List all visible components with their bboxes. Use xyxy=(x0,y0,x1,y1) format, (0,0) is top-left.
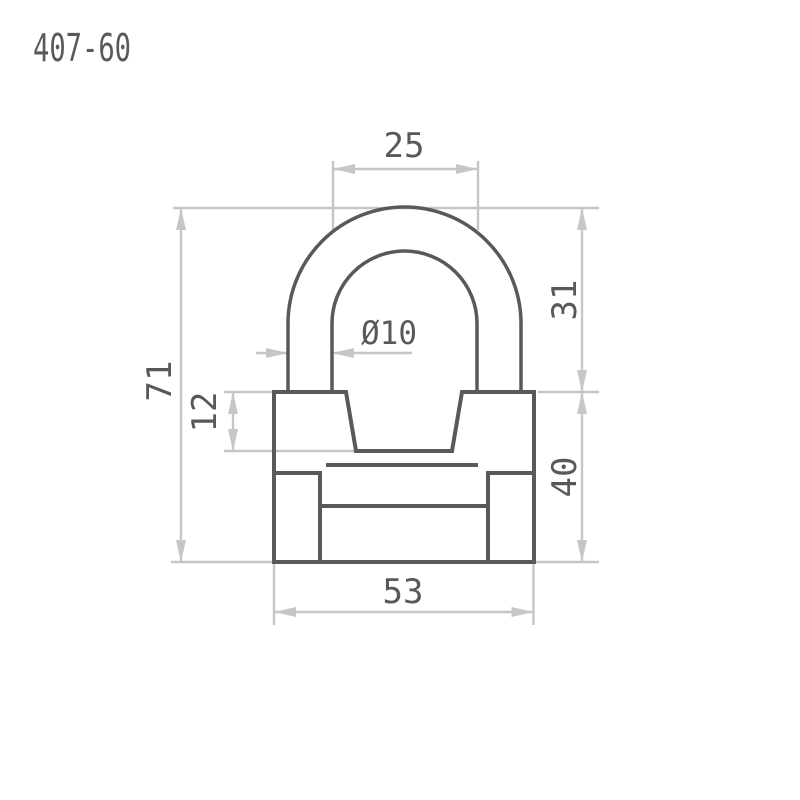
shackle-inner-width-label: 25 xyxy=(384,126,425,166)
arrow-40-top-icon xyxy=(577,392,587,414)
arrow-53-left-icon xyxy=(274,607,296,617)
arrow-31-top-icon xyxy=(577,208,587,230)
arrow-d10-right-icon xyxy=(332,348,354,358)
body-height-label: 40 xyxy=(545,457,585,498)
body-right-shoulder xyxy=(488,473,534,562)
arrow-25-left-icon xyxy=(333,164,355,174)
arrow-71-top-icon xyxy=(176,208,186,230)
arrow-d10-left-icon xyxy=(266,348,288,358)
shackle-outer-arc xyxy=(288,207,521,392)
lock-body-outline xyxy=(274,392,534,562)
arrow-12-top-icon xyxy=(228,392,238,414)
arrow-25-right-icon xyxy=(456,164,478,174)
arrow-31-bottom-icon xyxy=(577,370,587,392)
drawing-page: 407-60 25 Ø10 71 12 31 40 53 xyxy=(0,0,800,800)
drawing-title: 407-60 xyxy=(33,26,131,70)
arrow-40-bottom-icon xyxy=(577,540,587,562)
body-left-shoulder xyxy=(274,473,320,562)
padlock-outline xyxy=(274,207,534,562)
shackle-leg-visible-label: 12 xyxy=(185,392,225,433)
arrow-12-bottom-icon xyxy=(228,429,238,451)
shackle-height-label: 31 xyxy=(545,280,585,321)
technical-drawing-canvas: 407-60 25 Ø10 71 12 31 40 53 xyxy=(0,0,800,800)
labels: 407-60 25 Ø10 71 12 31 40 53 xyxy=(33,26,585,612)
overall-height-label: 71 xyxy=(140,361,180,402)
arrow-53-right-icon xyxy=(512,607,534,617)
body-width-label: 53 xyxy=(383,572,424,612)
arrow-71-bottom-icon xyxy=(176,540,186,562)
shackle-diameter-label: Ø10 xyxy=(361,314,417,352)
